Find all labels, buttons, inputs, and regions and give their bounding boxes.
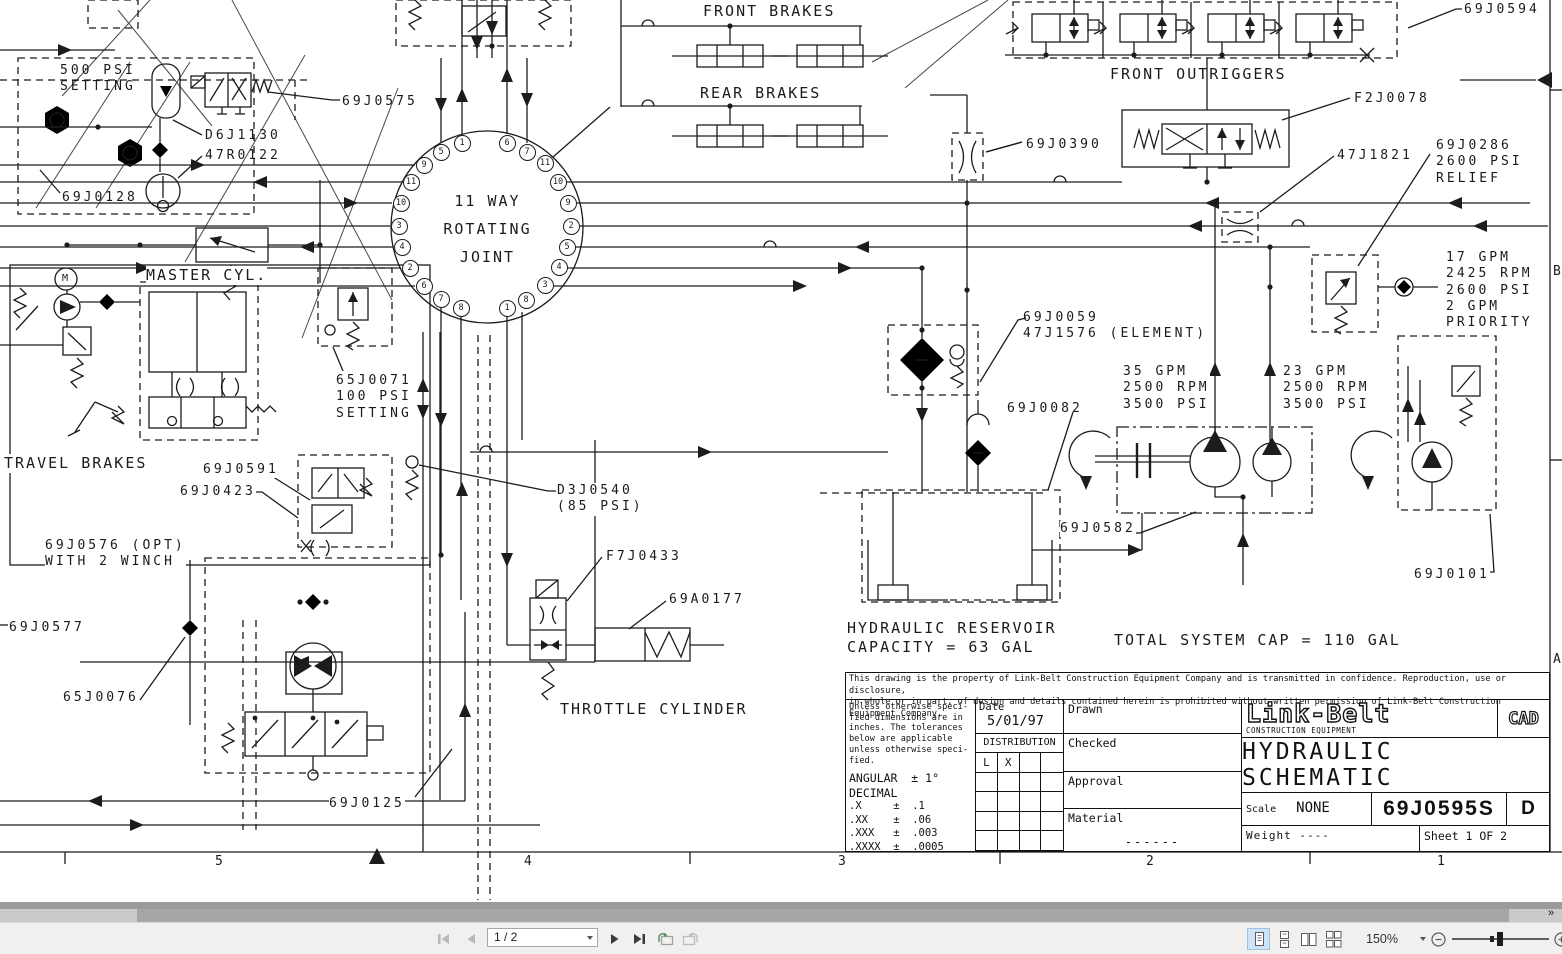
first-page-icon [436, 932, 452, 946]
joint-port-9: 9 [416, 157, 433, 174]
pdf-viewer-window: FRONT BRAKES REAR BRAKES FRONT OUTRIGGER… [0, 0, 1562, 954]
date-cell: Date 5/01/97 [976, 700, 1063, 734]
zoom-in-icon [1553, 931, 1562, 948]
distribution-cell [1041, 753, 1063, 773]
label-D6J1130: D6J1130 [205, 128, 281, 144]
distribution-cell [976, 792, 998, 812]
label-master-cyl: MASTER CYL. [146, 266, 267, 285]
joint-port-8: 8 [453, 300, 470, 317]
joint-port-10: 10 [550, 174, 567, 191]
page-dropdown-caret-icon[interactable] [587, 936, 593, 940]
distribution-cell [998, 773, 1020, 793]
joint-port-3: 3 [391, 218, 408, 235]
joint-port-9: 9 [560, 195, 577, 212]
decimal-heading: DECIMAL [849, 786, 972, 800]
scroll-right-icon[interactable]: » [1548, 907, 1554, 919]
tolerance-block: Unless otherwise speci- fied dimensions … [846, 700, 976, 851]
label-69J0390: 69J0390 [1026, 137, 1102, 153]
joint-port-4: 4 [394, 239, 411, 256]
label-69J0582: 69J0582 [1060, 521, 1136, 537]
last-page-button[interactable] [629, 929, 649, 949]
label-reservoir: HYDRAULIC RESERVOIR CAPACITY = 63 GAL [847, 619, 1057, 657]
zoom-out-icon [1430, 931, 1447, 948]
document-page: FRONT BRAKES REAR BRAKES FRONT OUTRIGGER… [0, 0, 1562, 902]
joint-port-7: 7 [433, 291, 450, 308]
next-page-button[interactable] [605, 929, 625, 949]
approval-cell: Approval [1064, 772, 1241, 809]
distribution-label: DISTRIBUTION [976, 734, 1063, 753]
drawing-title: HYDRAULIC SCHEMATIC [1242, 738, 1549, 793]
title-block: This drawing is the property of Link-Bel… [845, 672, 1550, 852]
label-69J0594: 69J0594 [1464, 2, 1540, 18]
joint-port-11: 11 [403, 174, 420, 191]
distribution-cell [998, 831, 1020, 851]
distribution-grid: L X [976, 753, 1063, 851]
distribution-cell: X [998, 753, 1020, 773]
label-69J0575: 69J0575 [342, 94, 418, 110]
joint-port-11: 11 [537, 155, 554, 172]
zone-letter-B: B [1553, 264, 1561, 279]
page-number-value: 1 / 2 [494, 930, 517, 944]
zoom-slider-tick [1490, 936, 1494, 942]
joint-port-2: 2 [402, 260, 419, 277]
joint-port-1: 1 [454, 135, 471, 152]
label-rotating-joint: 11 WAY ROTATING JOINT [425, 188, 550, 271]
drawn-cell: Drawn [1064, 700, 1241, 734]
confidentiality-notice: This drawing is the property of Link-Bel… [846, 673, 1549, 700]
single-page-view-button[interactable] [1247, 928, 1270, 950]
material-label: Material [1068, 811, 1123, 825]
zoom-level-value[interactable]: 150% [1366, 932, 1398, 946]
horizontal-scrollbar[interactable] [0, 909, 1562, 922]
joint-port-5: 5 [433, 144, 450, 161]
label-69J0082: 69J0082 [1007, 401, 1083, 417]
label-F7J0433: F7J0433 [606, 549, 682, 565]
distribution-cell [1041, 773, 1063, 793]
label-rear-brakes: REAR BRAKES [700, 84, 821, 103]
zoom-dropdown-caret-icon[interactable] [1420, 937, 1426, 941]
brand-logo: Link-Belt CONSTRUCTION EQUIPMENT [1242, 700, 1497, 737]
continuous-view-button[interactable] [1272, 928, 1295, 950]
previous-page-button[interactable] [461, 929, 481, 949]
joint-port-10: 10 [393, 195, 410, 212]
label-total-cap: TOTAL SYSTEM CAP = 110 GAL [1114, 631, 1401, 650]
tolerance-note: Unless otherwise speci- fied dimensions … [849, 702, 972, 766]
tolerance-row: .X ± .1 [849, 800, 972, 814]
label-47R0122: 47R0122 [205, 148, 281, 164]
distribution-cell [1020, 792, 1042, 812]
date-label: Date [979, 701, 1004, 713]
scale-label: Scale [1246, 804, 1276, 815]
joint-port-2: 2 [563, 218, 580, 235]
joint-port-5: 5 [559, 239, 576, 256]
checked-cell: Checked [1064, 734, 1241, 771]
zone-number-5: 5 [215, 854, 223, 869]
label-69J0059: 69J0059 47J1576 (ELEMENT) [1023, 310, 1207, 343]
scale-cell: Scale NONE [1242, 793, 1372, 825]
continuous-view-icon [1276, 931, 1292, 948]
distribution-cell [976, 773, 998, 793]
zone-number-2: 2 [1146, 854, 1154, 869]
weight-cell: Weight ---- [1242, 826, 1419, 851]
zoom-out-button[interactable] [1428, 929, 1448, 949]
label-69J0128: 69J0128 [62, 190, 138, 206]
previous-view-button[interactable] [655, 929, 675, 949]
label-69J0423: 69J0423 [180, 484, 256, 500]
label-F2J0078: F2J0078 [1354, 91, 1430, 107]
joint-port-3: 3 [537, 277, 554, 294]
distribution-cell [998, 792, 1020, 812]
distribution-cell [1020, 753, 1042, 773]
tolerance-row: .XXX ± .003 [849, 827, 972, 841]
zoom-in-button[interactable] [1551, 929, 1562, 949]
label-47J1821: 47J1821 [1337, 148, 1413, 164]
label-500psi: 500 PSI SETTING [60, 63, 136, 96]
joint-port-1: 1 [499, 300, 516, 317]
facing-pages-view-button[interactable] [1297, 928, 1320, 950]
label-motor-m: M [62, 273, 68, 286]
label-35gpm: 35 GPM 2500 RPM 3500 PSI [1123, 364, 1210, 413]
zone-number-3: 3 [838, 854, 846, 869]
label-69J0286: 69J0286 2600 PSI RELIEF [1436, 138, 1523, 187]
label-17gpm: 17 GPM 2425 RPM 2600 PSI 2 GPM PRIORITY [1446, 250, 1533, 331]
cad-label: CAD [1508, 709, 1539, 729]
scrollbar-thumb[interactable] [137, 909, 1509, 922]
document-edge-strip [0, 902, 1562, 909]
zoom-slider-handle[interactable] [1497, 932, 1503, 946]
distribution-cell [1020, 812, 1042, 832]
material-cell: Material ------ [1064, 809, 1241, 851]
sheet-number: Sheet 1 OF 2 [1419, 826, 1549, 851]
distribution-cell [1041, 831, 1063, 851]
angular-tolerance: ANGULAR ± 1° [849, 771, 972, 785]
material-value: ------ [1068, 835, 1237, 849]
next-page-icon [609, 932, 621, 946]
label-69A0177: 69A0177 [669, 592, 745, 608]
facing-continuous-view-button[interactable] [1322, 928, 1345, 950]
facing-continuous-icon [1325, 931, 1343, 948]
label-65J0071: 65J0071 100 PSI SETTING [336, 373, 412, 422]
previous-view-icon [655, 931, 675, 947]
joint-port-6: 6 [499, 135, 516, 152]
notice-line-1: This drawing is the property of Link-Bel… [849, 674, 1546, 697]
first-page-button[interactable] [434, 929, 454, 949]
next-view-button[interactable] [681, 929, 701, 949]
label-front-brakes: FRONT BRAKES [703, 2, 835, 21]
label-23gpm: 23 GPM 2500 RPM 3500 PSI [1283, 364, 1370, 413]
distribution-cell [998, 812, 1020, 832]
brand-name: Link-Belt [1246, 701, 1493, 726]
weight-label: Weight [1246, 829, 1292, 842]
label-69J0591: 69J0591 [203, 462, 279, 478]
date-value: 5/01/97 [979, 713, 1060, 729]
single-page-icon [1251, 931, 1267, 948]
weight-value: ---- [1299, 829, 1330, 842]
previous-page-icon [465, 932, 477, 946]
joint-port-4: 4 [551, 259, 568, 276]
zone-letter-A: A [1553, 652, 1561, 667]
joint-port-8: 8 [518, 292, 535, 309]
last-page-icon [631, 932, 647, 946]
distribution-cell [1020, 831, 1042, 851]
facing-pages-icon [1300, 931, 1318, 948]
label-69J0576: 69J0576 (OPT) WITH 2 WINCH [45, 538, 186, 571]
page-number-input[interactable]: 1 / 2 [487, 928, 598, 947]
label-69J0577: 69J0577 [9, 620, 85, 636]
distribution-cell [976, 831, 998, 851]
label-front-outriggers: FRONT OUTRIGGERS [1110, 65, 1287, 84]
label-69J0101: 69J0101 [1414, 567, 1490, 583]
tolerance-row: .XXXX ± .0005 [849, 841, 972, 855]
label-throttle-cylinder: THROTTLE CYLINDER [560, 700, 748, 719]
label-travel-brakes: TRAVEL BRAKES [4, 454, 147, 473]
label-D3J0540: D3J0540 (85 PSI) [557, 483, 644, 516]
distribution-cell: L [976, 753, 998, 773]
joint-port-6: 6 [416, 278, 433, 295]
distribution-cell [1041, 812, 1063, 832]
label-65J0076: 65J0076 [63, 690, 139, 706]
zone-number-1: 1 [1437, 854, 1445, 869]
zone-number-4: 4 [524, 854, 532, 869]
scale-value: NONE [1296, 800, 1330, 816]
distribution-cell [976, 812, 998, 832]
next-view-icon [681, 931, 701, 947]
drawing-number: 69J0595S [1372, 793, 1507, 825]
viewer-toolbar: 1 / 2 [0, 922, 1562, 954]
distribution-cell [1020, 773, 1042, 793]
label-69J0125: 69J0125 [329, 796, 405, 812]
size-letter: D [1507, 793, 1549, 825]
distribution-cell [1041, 792, 1063, 812]
cad-badge: CAD [1497, 700, 1549, 737]
joint-port-7: 7 [519, 144, 536, 161]
tolerance-row: .XX ± .06 [849, 814, 972, 828]
